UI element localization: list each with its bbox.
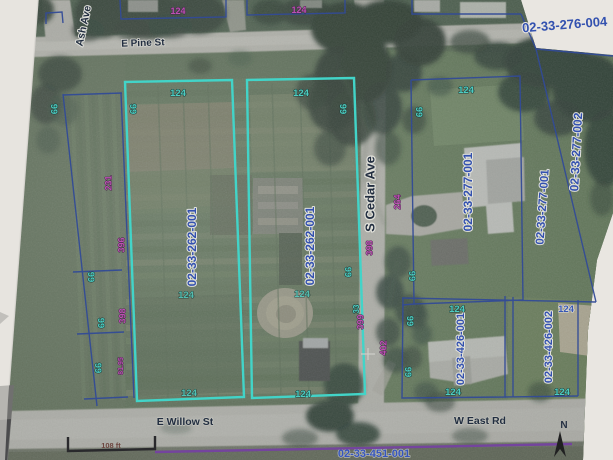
svg-text:264: 264 bbox=[392, 194, 402, 209]
svg-text:66: 66 bbox=[344, 267, 355, 278]
svg-text:398: 398 bbox=[117, 308, 127, 323]
svg-text:396: 396 bbox=[116, 237, 126, 252]
svg-text:W East Rd: W East Rd bbox=[454, 415, 506, 427]
svg-text:S Cedar Ave: S Cedar Ave bbox=[362, 156, 377, 232]
svg-text:02-33-426-001: 02-33-426-001 bbox=[455, 313, 467, 385]
svg-text:124: 124 bbox=[291, 5, 306, 15]
svg-text:124: 124 bbox=[181, 388, 198, 399]
svg-text:398: 398 bbox=[364, 240, 374, 255]
svg-text:E Pine St: E Pine St bbox=[121, 37, 165, 50]
svg-text:02-33-277-001: 02-33-277-001 bbox=[461, 152, 475, 231]
svg-text:E Willow St: E Willow St bbox=[157, 416, 214, 428]
svg-text:402: 402 bbox=[378, 340, 388, 355]
svg-text:66: 66 bbox=[87, 272, 98, 283]
svg-text:81.95: 81.95 bbox=[118, 357, 125, 375]
svg-text:66: 66 bbox=[97, 318, 108, 329]
svg-text:124: 124 bbox=[449, 304, 466, 315]
svg-text:02-33-426-002: 02-33-426-002 bbox=[543, 311, 555, 383]
svg-text:66: 66 bbox=[94, 363, 105, 374]
svg-text:124: 124 bbox=[558, 304, 575, 315]
svg-text:231: 231 bbox=[103, 175, 113, 190]
svg-text:124: 124 bbox=[294, 289, 311, 300]
svg-text:66: 66 bbox=[408, 271, 419, 282]
svg-text:399: 399 bbox=[355, 314, 365, 329]
svg-text:66: 66 bbox=[50, 104, 61, 115]
svg-text:108 ft: 108 ft bbox=[101, 441, 121, 450]
svg-text:66: 66 bbox=[339, 104, 350, 115]
svg-text:124: 124 bbox=[293, 88, 310, 99]
svg-text:66: 66 bbox=[129, 104, 140, 115]
svg-text:02-33-262-001: 02-33-262-001 bbox=[185, 207, 199, 286]
svg-text:124: 124 bbox=[554, 387, 571, 398]
svg-text:124: 124 bbox=[170, 6, 185, 16]
svg-text:124: 124 bbox=[458, 85, 475, 96]
svg-text:66: 66 bbox=[415, 107, 426, 118]
svg-text:66: 66 bbox=[406, 316, 417, 327]
svg-text:02-33-451-001: 02-33-451-001 bbox=[338, 448, 410, 460]
svg-text:02-33-262-001: 02-33-262-001 bbox=[303, 206, 317, 285]
svg-text:124: 124 bbox=[295, 389, 312, 400]
svg-text:124: 124 bbox=[445, 387, 462, 398]
svg-text:66: 66 bbox=[404, 367, 415, 378]
svg-text:N: N bbox=[560, 420, 567, 431]
svg-text:124: 124 bbox=[170, 88, 187, 99]
svg-text:33: 33 bbox=[352, 304, 361, 313]
svg-text:124: 124 bbox=[178, 290, 195, 301]
